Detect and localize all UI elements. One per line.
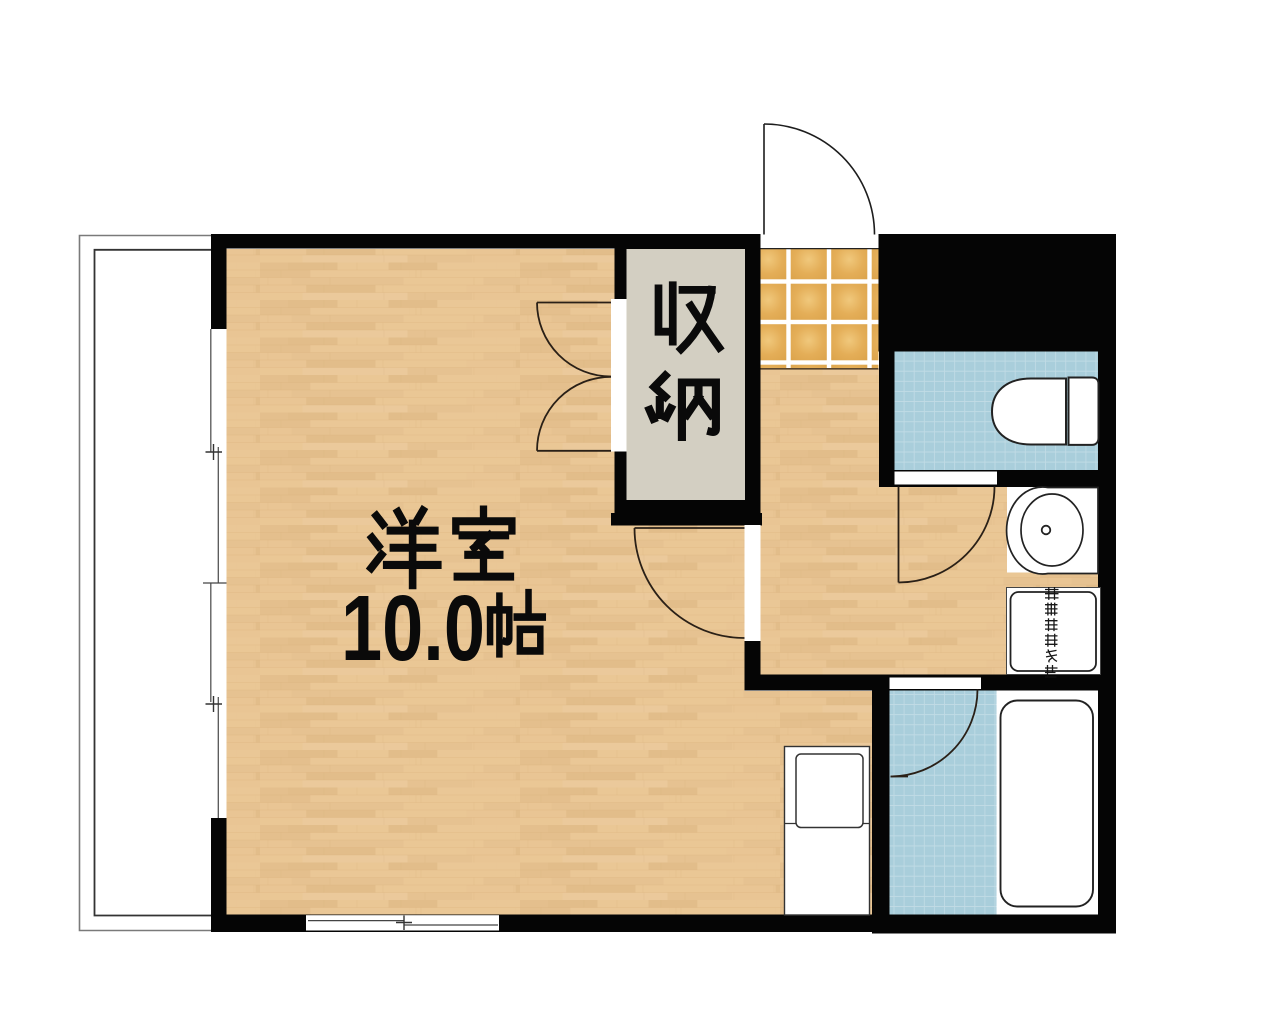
svg-text:10.0: 10.0 [341, 576, 485, 680]
